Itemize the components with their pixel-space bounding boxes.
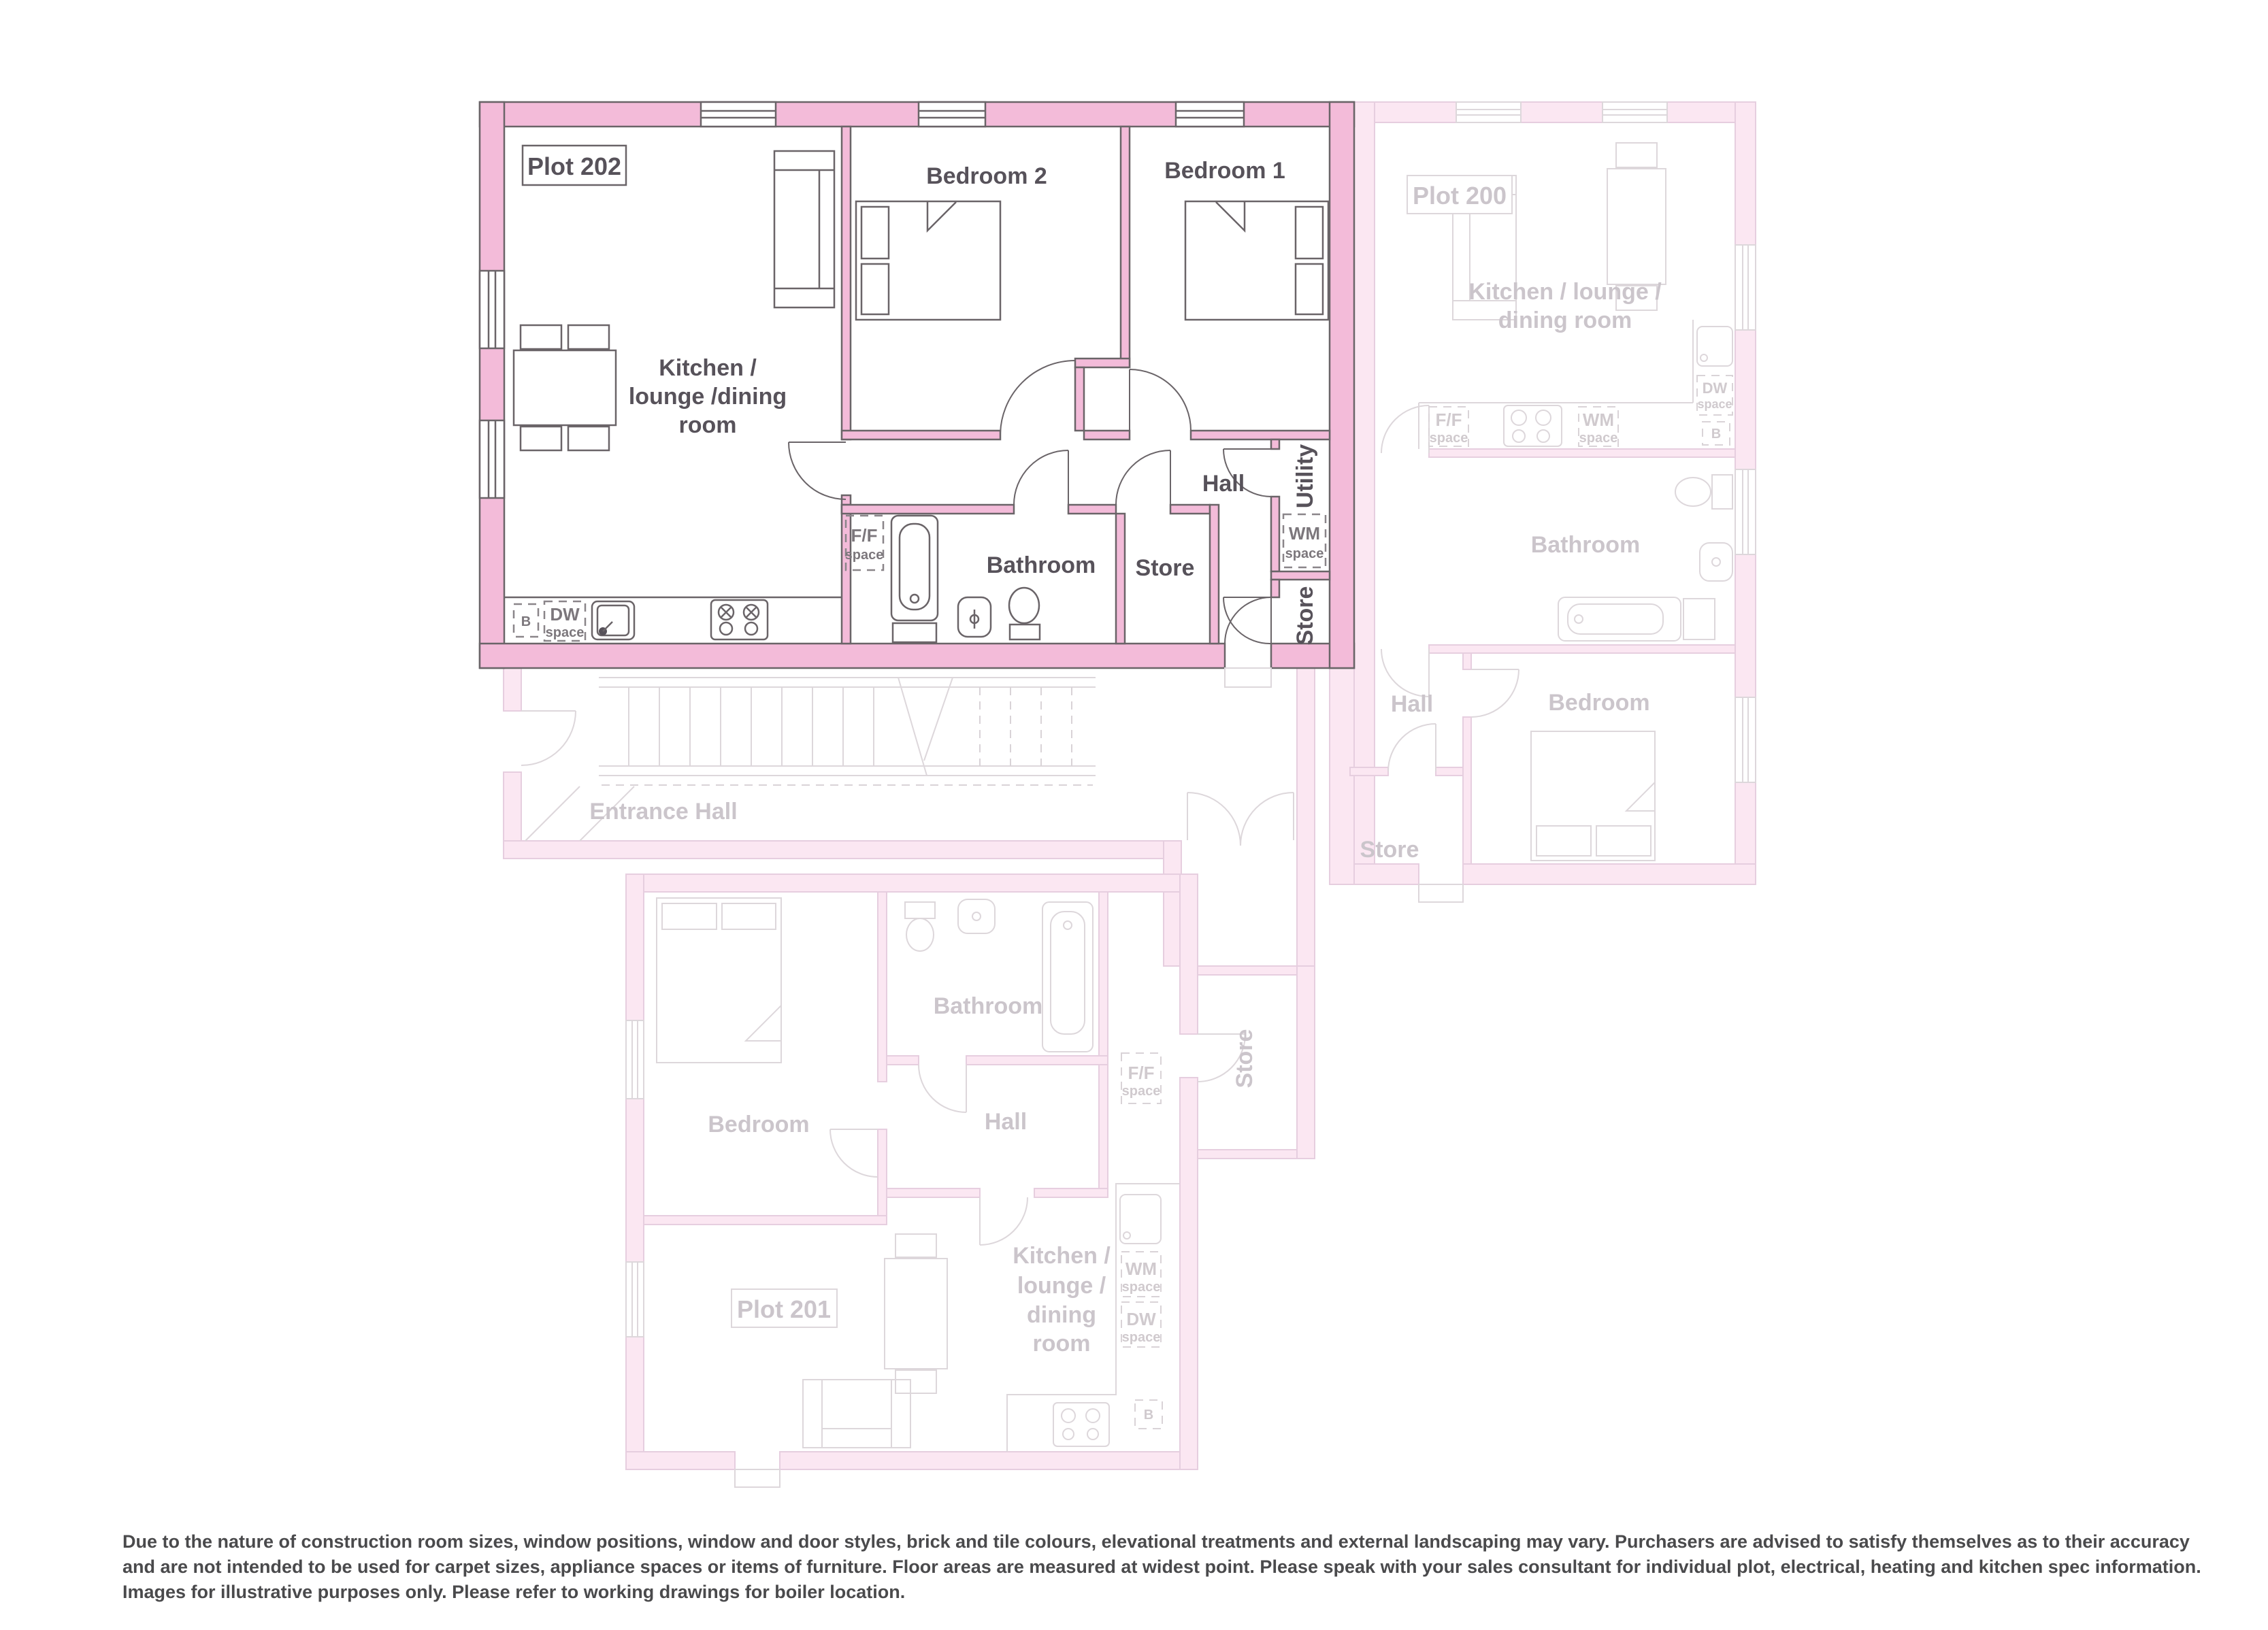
bathtub (1042, 902, 1093, 1052)
hob (1504, 405, 1562, 446)
boiler-space: B (1703, 422, 1730, 445)
plot-name: Plot 200 (1413, 182, 1507, 210)
toilet (905, 902, 935, 951)
wall (878, 1129, 887, 1225)
ff-label: space (845, 548, 884, 563)
bed (856, 201, 1000, 320)
plot-name: Plot 201 (737, 1295, 831, 1323)
wm-label: WM (1125, 1259, 1157, 1279)
wm-label: space (1122, 1280, 1161, 1295)
room-label-bedroom: Bedroom (1548, 690, 1649, 716)
boiler-space: B (514, 604, 538, 637)
dw-label: DW (1703, 380, 1728, 397)
bed (1531, 731, 1655, 861)
wall (1463, 653, 1471, 669)
wall (626, 874, 644, 1469)
wall (878, 892, 887, 1082)
plot-200: F/F space WM space DW space B (1330, 102, 1756, 902)
room-label-kitchen: lounge /dining (629, 384, 787, 410)
wall (480, 644, 1225, 668)
room-label-bathroom: Bathroom (1531, 532, 1641, 558)
wall (966, 1056, 1108, 1065)
room-label-entrance-hall: Entrance Hall (589, 799, 737, 825)
floorplan-svg: F/F space WM space DW space B (0, 0, 2268, 1630)
ff-space: F/F space (1429, 407, 1468, 446)
room-label-kitchen: room (1033, 1331, 1091, 1357)
wall (480, 102, 504, 668)
wall (842, 431, 1000, 439)
wall (780, 1452, 1198, 1469)
wall (644, 1216, 887, 1225)
room-label-kitchen: Kitchen / (1013, 1243, 1111, 1269)
bathtub (891, 516, 938, 642)
room-label-store: Store (1136, 555, 1195, 581)
room-label-store2: Store (1292, 586, 1318, 646)
wall (1271, 571, 1330, 580)
sofa (774, 151, 834, 307)
wall (1084, 431, 1130, 439)
wall (1429, 449, 1735, 457)
entry-step (735, 1469, 780, 1487)
boiler-label: B (521, 614, 531, 629)
ff-label: F/F (851, 525, 878, 546)
wall (1354, 102, 1756, 122)
wall (1075, 367, 1084, 431)
sofa (803, 1380, 910, 1448)
ff-label: space (1122, 1084, 1161, 1099)
room-label-hall: Hall (1391, 691, 1433, 717)
wall (1354, 864, 1419, 884)
wall (626, 1452, 735, 1469)
wall (1330, 102, 1354, 668)
wall (1075, 359, 1130, 367)
wall (504, 841, 1164, 859)
entry-step (1225, 668, 1271, 687)
wm-label: WM (1289, 523, 1320, 544)
wall (1210, 505, 1219, 644)
wall (842, 127, 851, 439)
hob (711, 600, 768, 639)
plot-201: F/F space WM space DW space B (626, 874, 1315, 1487)
wall (1164, 841, 1181, 966)
plot-200-label: Plot 200 (1407, 176, 1512, 214)
floorplan-page: F/F space WM space DW space B (0, 0, 2268, 1630)
room-label-bathroom: Bathroom (987, 552, 1096, 578)
basin (958, 899, 995, 933)
room-label-kitchen: Kitchen / lounge / (1468, 279, 1662, 305)
wall (1271, 497, 1279, 571)
wall (1463, 717, 1471, 864)
room-label-utility: Utility (1292, 444, 1318, 509)
wall (1271, 580, 1279, 597)
wm-label: space (1285, 546, 1324, 561)
bed (657, 898, 781, 1063)
room-label-kitchen: dining room (1498, 307, 1632, 333)
dining-table (885, 1234, 947, 1393)
door-arc (521, 711, 1294, 846)
wall (887, 1188, 980, 1197)
dw-label: space (1697, 397, 1732, 411)
wall (1099, 892, 1108, 1065)
dw-space: DW space (544, 601, 585, 641)
boiler-label: B (1711, 427, 1721, 442)
wall (1034, 1188, 1108, 1197)
ff-space: F/F space (1121, 1053, 1161, 1103)
boiler-space: B (1135, 1400, 1162, 1429)
wall (1436, 767, 1463, 776)
ff-label: space (1430, 431, 1468, 446)
toilet (1675, 475, 1732, 509)
room-label-bedroom2: Bedroom 2 (926, 163, 1047, 189)
dw-label: space (546, 625, 585, 640)
room-label-hall: Hall (985, 1109, 1027, 1135)
wall (1191, 431, 1330, 439)
plot-202-label: Plot 202 (523, 146, 626, 185)
dw-label: DW (1126, 1309, 1156, 1329)
wm-label: WM (1583, 410, 1614, 430)
dw-label: DW (550, 604, 580, 625)
disclaimer-text: Due to the nature of construction room s… (122, 1529, 2205, 1605)
wall (842, 505, 1014, 514)
room-label-kitchen: lounge / (1017, 1273, 1106, 1299)
wm-space: WM space (1283, 514, 1326, 567)
wm-space: WM space (1121, 1252, 1161, 1297)
wall (1099, 1065, 1108, 1188)
dw-label: space (1122, 1330, 1161, 1345)
basin (958, 597, 991, 637)
dw-space: DW space (1697, 376, 1732, 415)
sink (1120, 1195, 1161, 1244)
room-label-kitchen: Kitchen / (659, 355, 757, 381)
dw-space: DW space (1121, 1302, 1161, 1347)
wall (1271, 439, 1279, 449)
wm-label: space (1579, 431, 1618, 446)
bed (1185, 201, 1328, 320)
wall (1068, 505, 1116, 514)
boiler-label: B (1144, 1408, 1153, 1423)
ff-label: F/F (1436, 410, 1462, 430)
wall (1116, 514, 1125, 644)
hob (1053, 1403, 1109, 1446)
wall (1180, 1078, 1198, 1469)
wall (1350, 767, 1388, 776)
wall (504, 668, 521, 711)
plot-202: B DW space F/F space (480, 102, 1354, 687)
entry-step (1419, 884, 1463, 902)
wall (1180, 874, 1198, 1034)
toilet (1009, 588, 1040, 639)
room-label-bedroom: Bedroom (708, 1112, 809, 1137)
wall (1170, 505, 1210, 514)
ff-label: F/F (1128, 1063, 1155, 1083)
wall (1297, 668, 1315, 966)
wall (1121, 127, 1130, 367)
room-label-store: Store (1360, 837, 1419, 863)
room-label-kitchen: room (679, 412, 737, 438)
basin (1700, 543, 1732, 581)
wall (1463, 864, 1756, 884)
dining-table (514, 325, 616, 450)
room-label-hall: Hall (1202, 471, 1245, 497)
room-label-store: Store (1232, 1029, 1258, 1088)
wm-space: WM space (1579, 407, 1618, 446)
staircase (599, 678, 1096, 785)
wall (626, 874, 1198, 892)
bathtub (1558, 597, 1715, 641)
room-label-bathroom: Bathroom (934, 993, 1043, 1019)
sink (592, 601, 634, 639)
sink (1697, 327, 1732, 366)
room-label-bedroom1: Bedroom 1 (1164, 158, 1285, 184)
plot-201-label: Plot 201 (732, 1289, 837, 1327)
room-label-kitchen: dining (1027, 1302, 1096, 1328)
plot-name: Plot 202 (527, 152, 621, 180)
wall (1429, 645, 1735, 653)
wall (887, 1056, 919, 1065)
wall (1297, 966, 1315, 1159)
